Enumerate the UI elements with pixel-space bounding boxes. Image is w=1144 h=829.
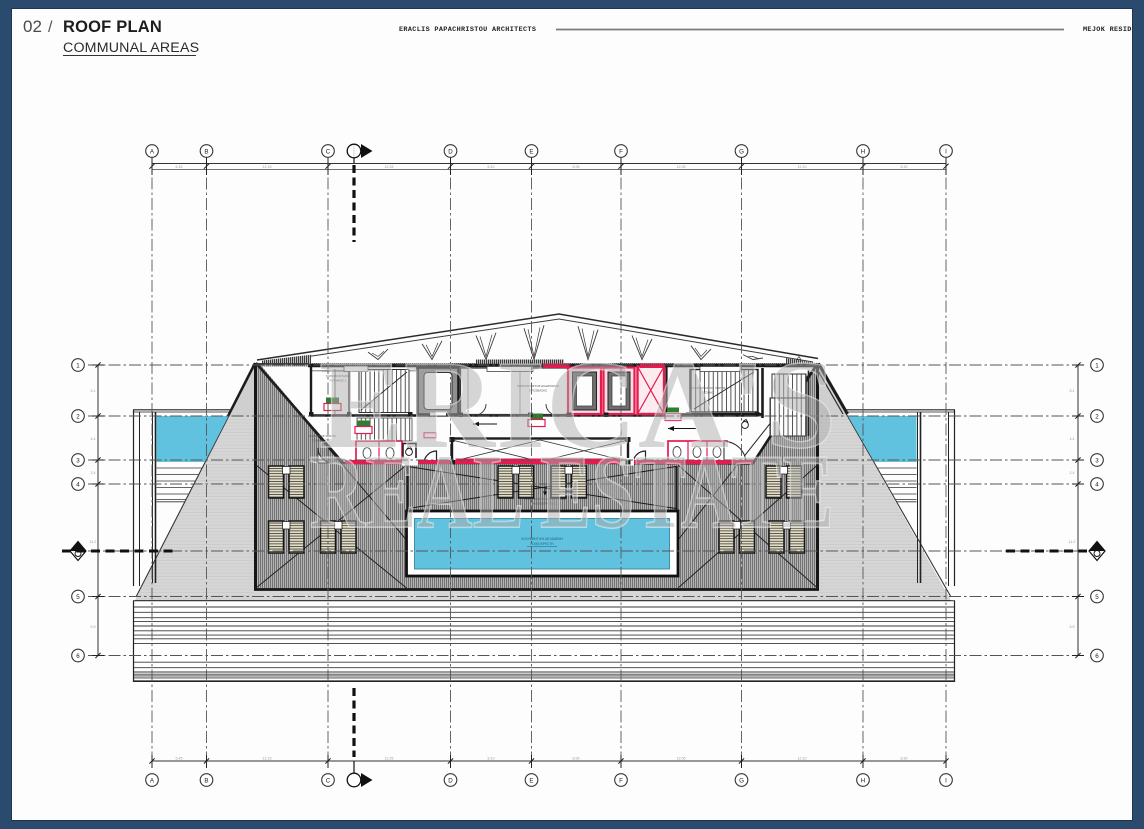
svg-text:C: C: [326, 778, 331, 785]
svg-text:02: 02: [23, 17, 42, 36]
svg-text:6: 6: [1095, 653, 1099, 660]
svg-text:1: 1: [1095, 363, 1099, 370]
svg-text:5.45: 5.45: [176, 165, 183, 169]
svg-text:H: H: [861, 778, 865, 785]
svg-text:H: H: [861, 149, 865, 156]
svg-text:4: 4: [1095, 482, 1099, 489]
svg-text:2.4: 2.4: [91, 471, 96, 475]
svg-text:8.30: 8.30: [901, 757, 908, 761]
svg-text:4: 4: [76, 482, 80, 489]
svg-text:11.2: 11.2: [1069, 540, 1076, 544]
svg-text:REAL ESTATE: REAL ESTATE: [310, 433, 835, 550]
svg-text:/: /: [48, 19, 53, 36]
svg-text:5.45: 5.45: [176, 757, 183, 761]
svg-text:I: I: [945, 149, 947, 156]
svg-text:12.15: 12.15: [263, 757, 272, 761]
svg-text:B: B: [204, 149, 208, 156]
svg-text:12.25: 12.25: [385, 165, 394, 169]
svg-text:12.10: 12.10: [798, 757, 807, 761]
svg-text:5.9: 5.9: [1070, 625, 1075, 629]
svg-text:2: 2: [76, 414, 80, 421]
svg-text:COMMUNAL AREAS: COMMUNAL AREAS: [63, 40, 199, 56]
svg-text:3: 3: [1095, 458, 1099, 465]
svg-text:8.30: 8.30: [901, 165, 908, 169]
svg-text:12.05: 12.05: [677, 757, 686, 761]
svg-text:2.4: 2.4: [1070, 471, 1075, 475]
svg-text:8.10: 8.10: [488, 757, 495, 761]
svg-text:5.1: 5.1: [91, 389, 96, 393]
svg-text:12.25: 12.25: [385, 757, 394, 761]
svg-text:4.4: 4.4: [91, 437, 96, 441]
svg-text:F: F: [619, 149, 623, 156]
svg-text:5.9: 5.9: [91, 625, 96, 629]
svg-text:8.10: 8.10: [488, 165, 495, 169]
svg-text:ROOF PLAN: ROOF PLAN: [63, 18, 162, 36]
svg-text:3: 3: [76, 458, 80, 465]
svg-text:8.95: 8.95: [573, 165, 580, 169]
svg-text:MEJOK RESID: MEJOK RESID: [1083, 26, 1132, 34]
svg-text:E: E: [529, 149, 533, 156]
svg-text:E: E: [529, 778, 533, 785]
svg-text:12.10: 12.10: [798, 165, 807, 169]
svg-text:I: I: [945, 778, 947, 785]
svg-text:G: G: [739, 778, 744, 785]
svg-text:1: 1: [76, 363, 80, 370]
svg-text:D: D: [448, 149, 453, 156]
svg-text:C: C: [326, 149, 331, 156]
svg-text:12.05: 12.05: [677, 165, 686, 169]
svg-text:11.2: 11.2: [90, 540, 97, 544]
svg-text:B: B: [204, 778, 208, 785]
svg-text:D: D: [448, 778, 453, 785]
svg-text:5.1: 5.1: [1070, 389, 1075, 393]
svg-text:2: 2: [1095, 414, 1099, 421]
svg-text:ERACLIS PAPACHRISTOU ARCHITECT: ERACLIS PAPACHRISTOU ARCHITECTS: [399, 26, 536, 34]
svg-text:5: 5: [1095, 594, 1099, 601]
svg-text:6: 6: [76, 653, 80, 660]
svg-text:5: 5: [76, 594, 80, 601]
svg-text:F: F: [619, 778, 623, 785]
svg-text:G: G: [739, 149, 744, 156]
svg-text:8.95: 8.95: [573, 757, 580, 761]
svg-text:12.15: 12.15: [263, 165, 272, 169]
svg-text:4.4: 4.4: [1070, 437, 1075, 441]
